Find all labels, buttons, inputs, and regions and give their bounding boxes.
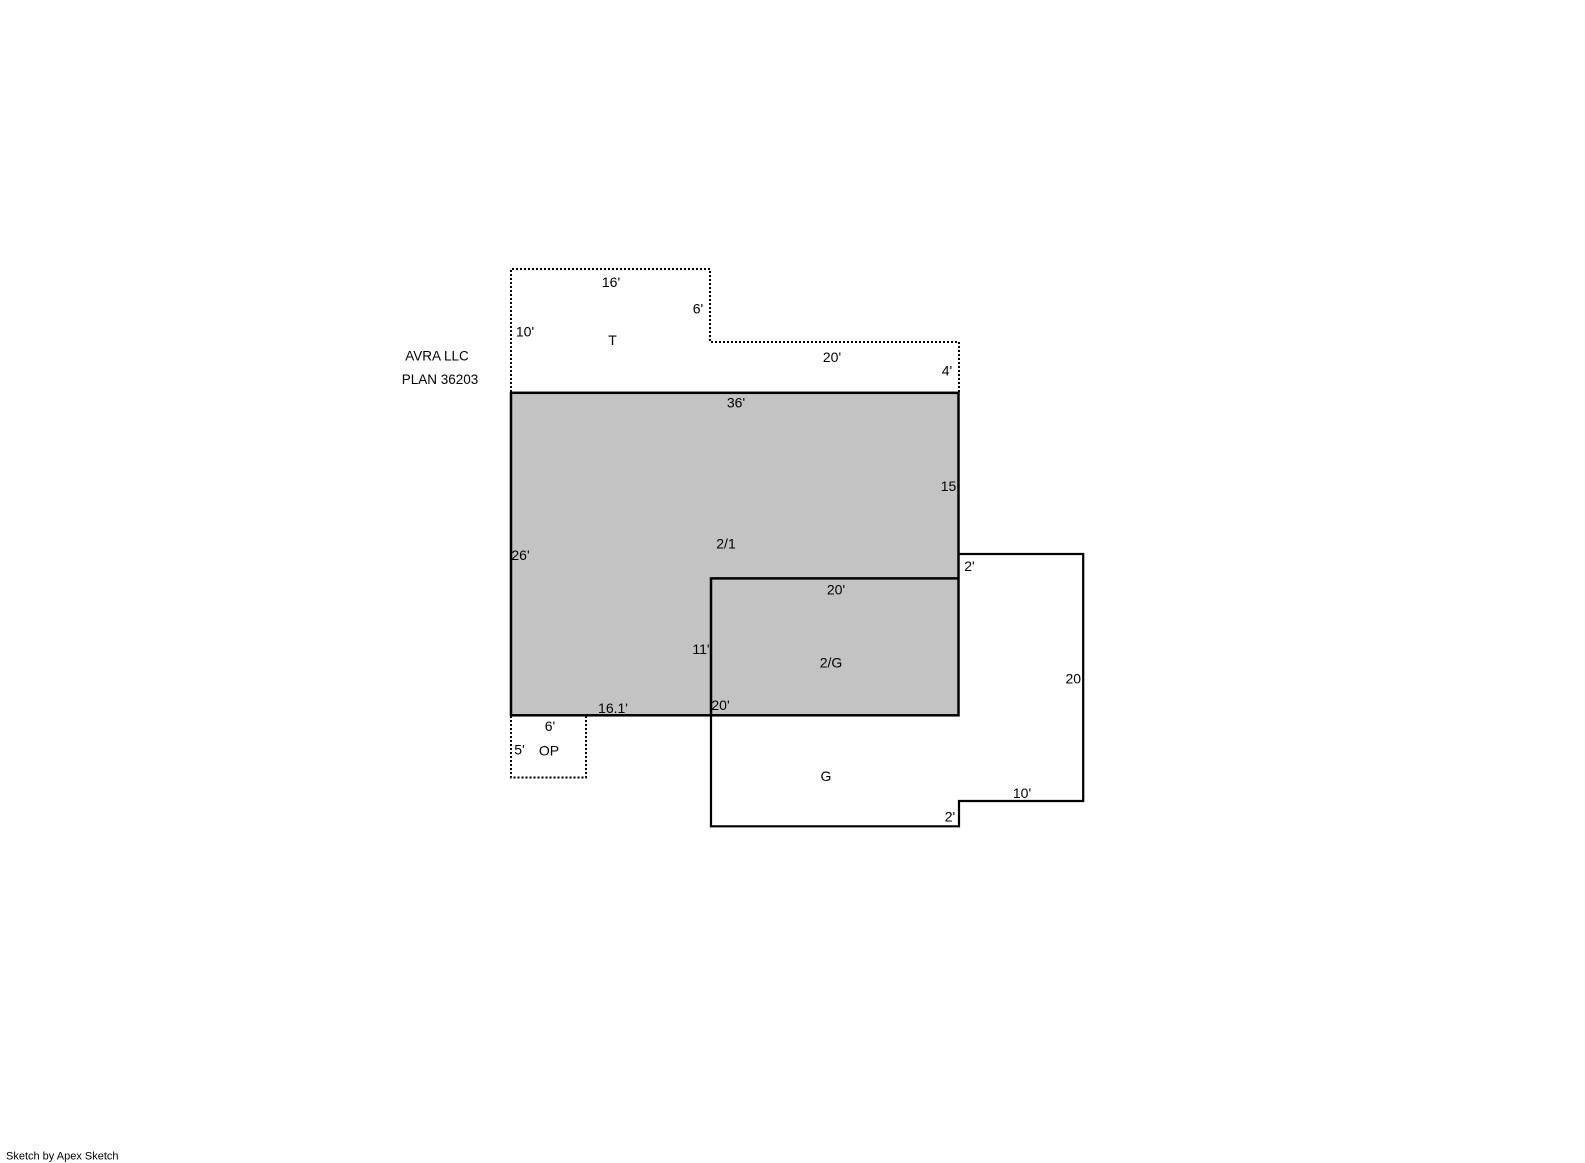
svg-text:26': 26'	[511, 547, 529, 563]
svg-text:10': 10'	[516, 324, 534, 340]
svg-text:T: T	[608, 332, 617, 348]
svg-text:2': 2'	[964, 558, 974, 574]
svg-text:5': 5'	[514, 742, 524, 758]
svg-text:OP: OP	[539, 743, 559, 759]
svg-text:Sketch by Apex Sketch: Sketch by Apex Sketch	[6, 1151, 119, 1163]
svg-text:16': 16'	[602, 274, 620, 290]
svg-text:PLAN 36203: PLAN 36203	[402, 372, 479, 387]
svg-text:2/G: 2/G	[820, 655, 843, 671]
svg-text:15: 15	[941, 478, 957, 494]
svg-text:6': 6'	[693, 301, 703, 317]
svg-text:2': 2'	[945, 809, 955, 825]
svg-text:20': 20'	[711, 697, 729, 713]
svg-text:20: 20	[1066, 671, 1082, 687]
svg-text:11': 11'	[692, 641, 709, 657]
svg-text:36': 36'	[727, 395, 745, 411]
svg-text:20': 20'	[823, 349, 841, 365]
svg-text:20': 20'	[827, 582, 845, 598]
svg-text:16.1': 16.1'	[598, 700, 628, 716]
svg-text:6': 6'	[545, 718, 555, 734]
svg-text:AVRA LLC: AVRA LLC	[405, 349, 469, 364]
svg-text:10': 10'	[1013, 785, 1031, 801]
svg-text:G: G	[821, 768, 832, 784]
svg-text:2/1: 2/1	[716, 536, 736, 552]
svg-text:4': 4'	[942, 363, 952, 379]
